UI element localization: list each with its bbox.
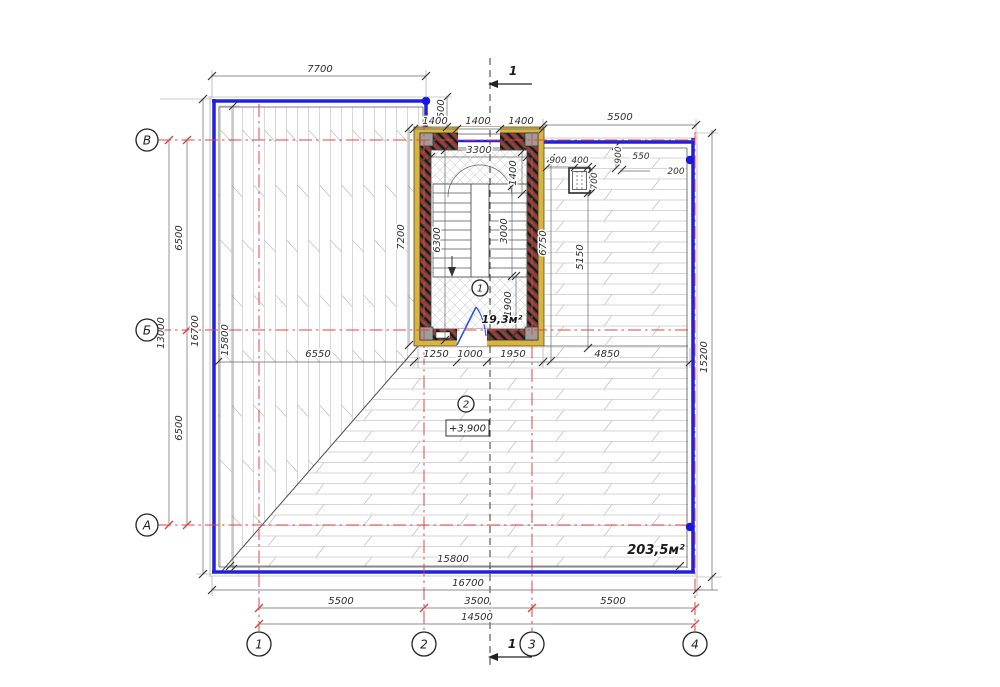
dim-right-6750: 6750 [538,230,549,255]
dim-bottom-16700: 16700 [452,578,484,589]
dim-shaft-900b: 900 [614,146,624,163]
axis-label-col-3: 3 [528,638,536,652]
dim-mid-4850: 4850 [594,349,619,360]
dim-mid-6550: 6550 [305,349,330,360]
dim-stair-3300: 3300 [466,145,491,156]
room-tag-2: 2 [463,400,469,411]
floor-plan-drawing: 7700 1500 1400 1400 1400 5500 3300 1400 … [0,0,1000,687]
dim-top-1400-left: 1400 [422,116,447,127]
floor-area-label: 203,5м² [627,543,685,558]
stairwell-area-label: 19,3м² [482,313,523,326]
dim-stair-3000: 3000 [499,218,510,243]
dim-left-16700: 16700 [190,315,201,347]
dim-stair-7200: 7200 [396,224,407,249]
elevation-label: +3,900 [449,424,486,435]
dim-bottom-15800: 15800 [437,554,469,565]
dim-left-6500-top: 6500 [174,225,185,250]
dim-left-15800: 15800 [220,324,231,356]
dim-top-1400-right: 1400 [508,116,533,127]
plank-hatch-right-region [545,149,687,345]
dim-right-5150: 5150 [575,244,586,269]
dim-mid-1250: 1250 [423,349,448,360]
axis-label-row-v: В [143,134,151,148]
dim-bottom-5500-right: 5500 [600,596,625,607]
dim-bottom-5500-left: 5500 [328,596,353,607]
axis-label-row-b: Б [143,324,151,338]
dim-left-6500-bottom: 6500 [174,415,185,440]
dim-mid-1000: 1000 [457,349,482,360]
section-label-bottom: 1 [508,637,516,651]
dim-shaft-700: 700 [590,172,600,189]
section-label-top: 1 [509,64,517,78]
axis-label-col-2: 2 [420,638,428,652]
dim-top-1400-mid: 1400 [465,116,490,127]
dim-stair-6300: 6300 [432,227,443,252]
stair-center-wall [471,184,489,277]
room-tag-1: 1 [477,284,483,295]
axis-label-col-4: 4 [691,638,699,652]
dim-mid-1950: 1950 [500,349,525,360]
dim-top-7700: 7700 [307,64,332,75]
dim-bottom-3500: 3500 [464,596,489,607]
axis-label-col-1: 1 [255,638,263,652]
dim-stair-1400: 1400 [508,160,519,185]
dim-bottom-14500: 14500 [461,612,493,623]
vent-shaft-symbol [569,168,590,193]
floor-plan-page: 7700 1500 1400 1400 1400 5500 3300 1400 … [0,0,1000,687]
dim-right-15200: 15200 [699,341,710,373]
dim-shaft-400: 400 [571,156,588,166]
dim-shaft-550: 550 [632,152,649,162]
axis-label-row-a: А [142,519,151,533]
dim-top-5500: 5500 [607,112,632,123]
dim-shaft-900: 900 [549,156,566,166]
dim-shaft-200: 200 [667,167,684,177]
